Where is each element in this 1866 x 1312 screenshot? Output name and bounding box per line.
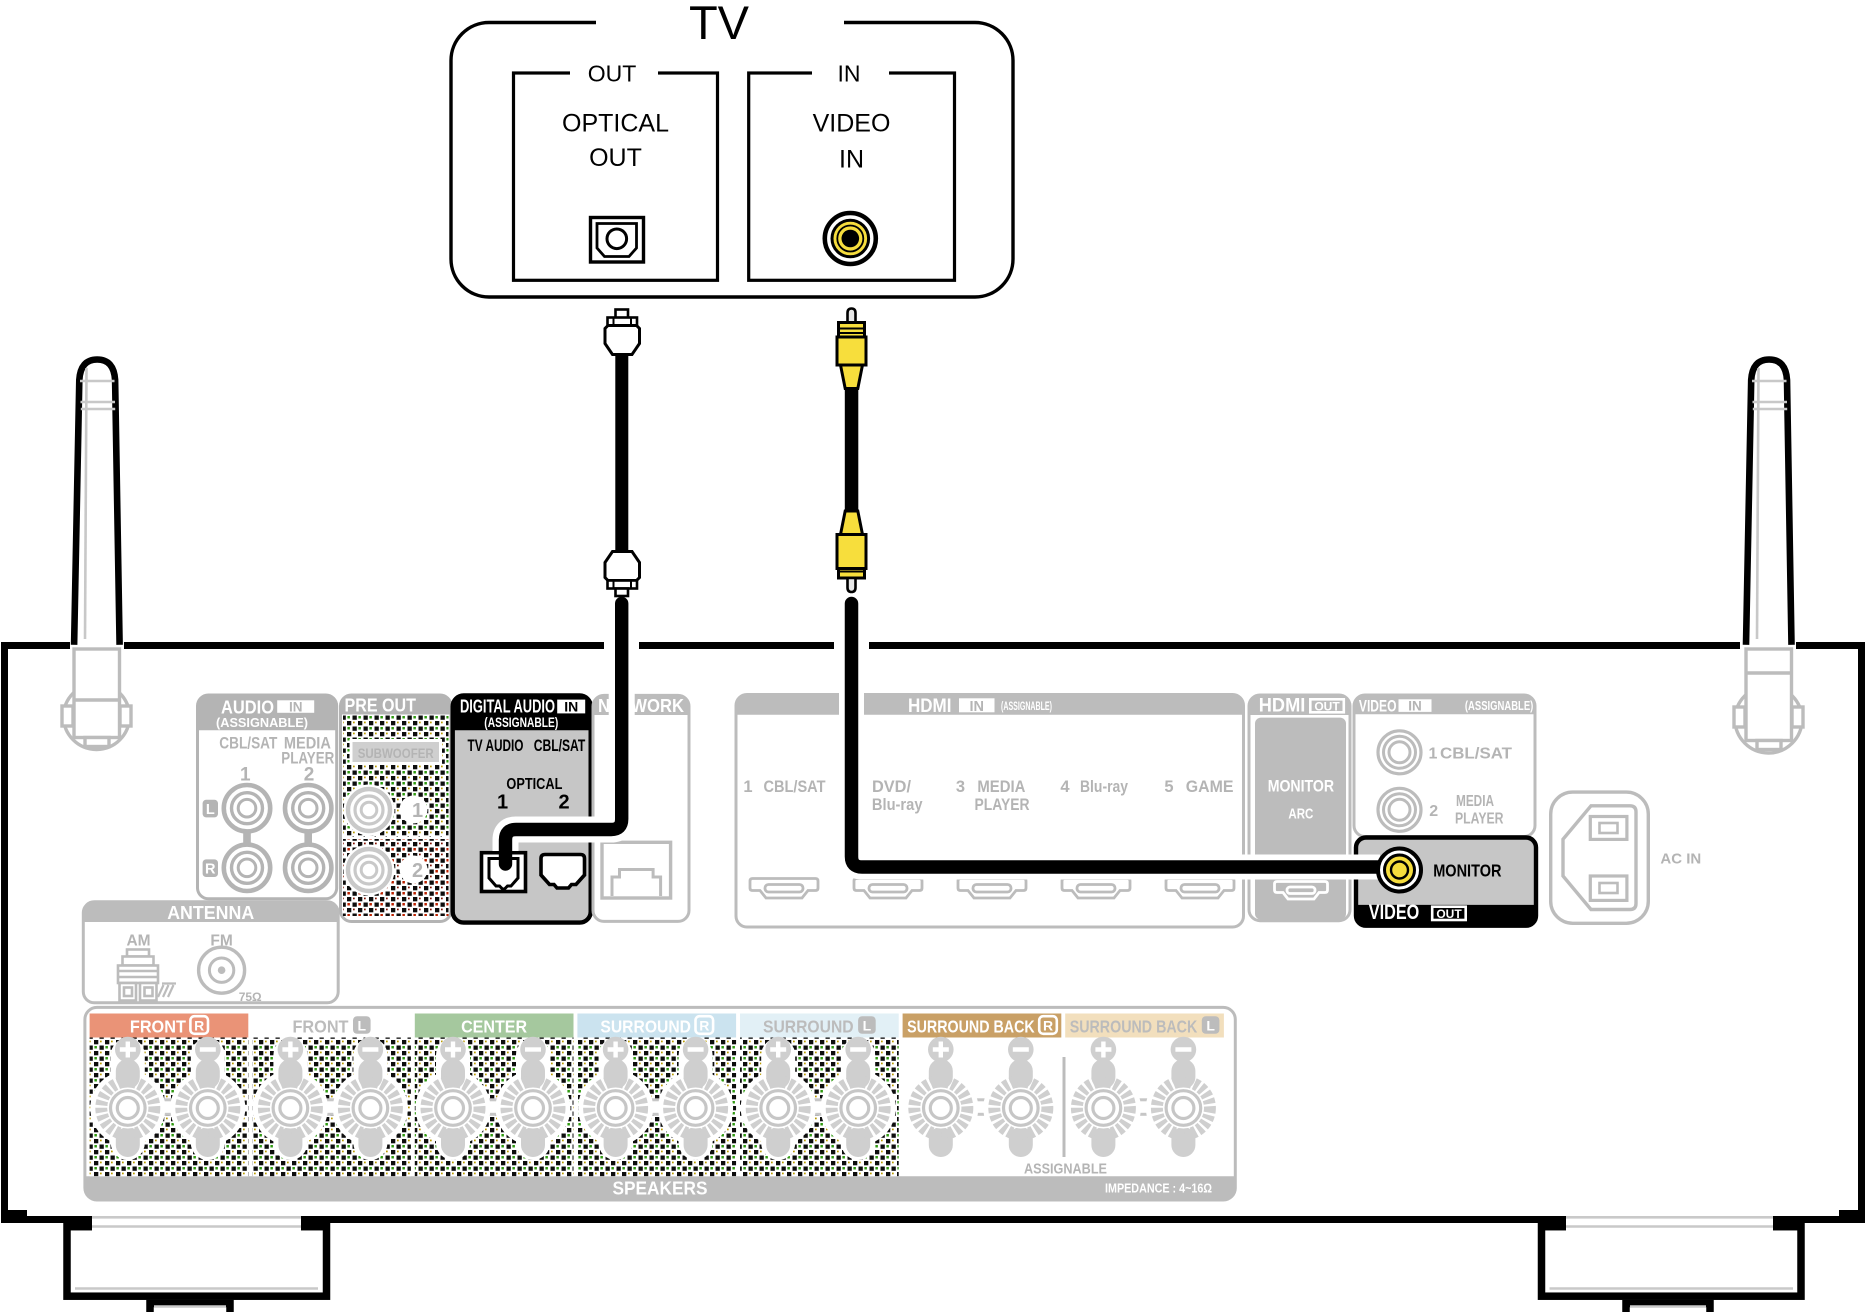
svg-text:(ASSIGNABLE): (ASSIGNABLE): [1001, 701, 1052, 713]
svg-text:IN: IN: [838, 61, 861, 87]
svg-text:SURROUND: SURROUND: [600, 1017, 691, 1037]
svg-text:IN: IN: [564, 698, 578, 714]
svg-text:OUT: OUT: [588, 61, 637, 87]
svg-text:CENTER: CENTER: [461, 1017, 527, 1037]
svg-text:OUT: OUT: [1436, 907, 1462, 921]
svg-text:L: L: [206, 802, 215, 818]
svg-text:IN: IN: [839, 146, 864, 174]
svg-text:2: 2: [412, 860, 423, 882]
svg-text:MEDIA: MEDIA: [1456, 793, 1494, 810]
svg-text:1: 1: [743, 778, 752, 796]
svg-text:SURROUND BACK: SURROUND BACK: [1070, 1017, 1198, 1037]
svg-text:75Ω: 75Ω: [239, 990, 262, 1004]
svg-text:AM: AM: [126, 933, 150, 950]
svg-text:ASSIGNABLE: ASSIGNABLE: [1024, 1162, 1107, 1178]
svg-text:TV AUDIO: TV AUDIO: [468, 736, 524, 755]
svg-text:MONITOR: MONITOR: [1268, 777, 1334, 796]
svg-text:HDMI: HDMI: [908, 696, 952, 717]
svg-text:GAME: GAME: [1186, 778, 1234, 796]
svg-text:FRONT: FRONT: [293, 1017, 349, 1037]
svg-text:PLAYER: PLAYER: [1455, 811, 1504, 828]
svg-text:PLAYER: PLAYER: [975, 796, 1030, 814]
svg-text:R: R: [194, 1018, 204, 1034]
svg-text:(ASSIGNABLE): (ASSIGNABLE): [1465, 698, 1533, 713]
svg-text:1: 1: [240, 765, 251, 786]
svg-text:1: 1: [1429, 746, 1438, 763]
svg-text:SURROUND: SURROUND: [763, 1017, 854, 1037]
svg-text:(ASSIGNABLE): (ASSIGNABLE): [484, 715, 558, 730]
svg-text:VIDEO: VIDEO: [1369, 901, 1420, 924]
svg-text:IN: IN: [289, 700, 303, 715]
svg-text:R: R: [1043, 1018, 1053, 1034]
svg-text:L: L: [1206, 1018, 1215, 1034]
svg-text:VIDEO: VIDEO: [813, 110, 891, 138]
svg-text:IN: IN: [1408, 699, 1422, 714]
svg-text:2: 2: [304, 765, 315, 786]
svg-text:ANTENNA: ANTENNA: [167, 903, 254, 923]
svg-text:VIDEO: VIDEO: [1359, 697, 1397, 716]
svg-text:TV: TV: [689, 0, 750, 49]
svg-text:CBL/SAT: CBL/SAT: [219, 735, 277, 753]
svg-text:DIGITAL AUDIO: DIGITAL AUDIO: [460, 697, 555, 717]
svg-text:OUT: OUT: [589, 144, 642, 172]
svg-text:5: 5: [1164, 778, 1173, 796]
svg-text:OPTICAL: OPTICAL: [562, 110, 669, 138]
svg-text:3: 3: [956, 778, 965, 796]
svg-text:L: L: [358, 1018, 367, 1034]
svg-text:IMPEDANCE : 4~16Ω: IMPEDANCE : 4~16Ω: [1105, 1181, 1212, 1196]
svg-text:R: R: [699, 1018, 709, 1034]
svg-text:DVD/: DVD/: [872, 778, 911, 796]
svg-text:SURROUND BACK: SURROUND BACK: [907, 1017, 1035, 1037]
svg-text:ARC: ARC: [1288, 807, 1313, 823]
svg-text:MONITOR: MONITOR: [1433, 861, 1502, 881]
svg-text:1: 1: [412, 800, 423, 822]
svg-text:CBL/SAT: CBL/SAT: [534, 736, 586, 755]
svg-text:FRONT: FRONT: [130, 1017, 186, 1037]
svg-text:R: R: [205, 862, 216, 878]
svg-text:SUBWOOFER: SUBWOOFER: [358, 746, 434, 761]
svg-text:4: 4: [1060, 778, 1070, 796]
svg-text:CBL/SAT: CBL/SAT: [1440, 746, 1512, 763]
svg-text:2: 2: [558, 792, 569, 814]
svg-text:PRE OUT: PRE OUT: [345, 695, 417, 716]
svg-text:Blu-ray: Blu-ray: [872, 796, 923, 814]
svg-text:OPTICAL: OPTICAL: [506, 776, 562, 793]
svg-text:SPEAKERS: SPEAKERS: [613, 1178, 708, 1199]
svg-text:CBL/SAT: CBL/SAT: [764, 778, 826, 796]
svg-text:IN: IN: [969, 699, 984, 715]
svg-text:1: 1: [497, 792, 508, 814]
svg-text:OUT: OUT: [1314, 700, 1340, 714]
svg-text:2: 2: [1429, 803, 1438, 820]
svg-text:(ASSIGNABLE): (ASSIGNABLE): [216, 715, 308, 730]
svg-text:HDMI: HDMI: [1259, 696, 1306, 717]
svg-text:AC IN: AC IN: [1660, 851, 1701, 868]
svg-text:L: L: [863, 1018, 872, 1034]
svg-text:MEDIA: MEDIA: [977, 778, 1025, 796]
svg-text:Blu-ray: Blu-ray: [1080, 778, 1129, 796]
